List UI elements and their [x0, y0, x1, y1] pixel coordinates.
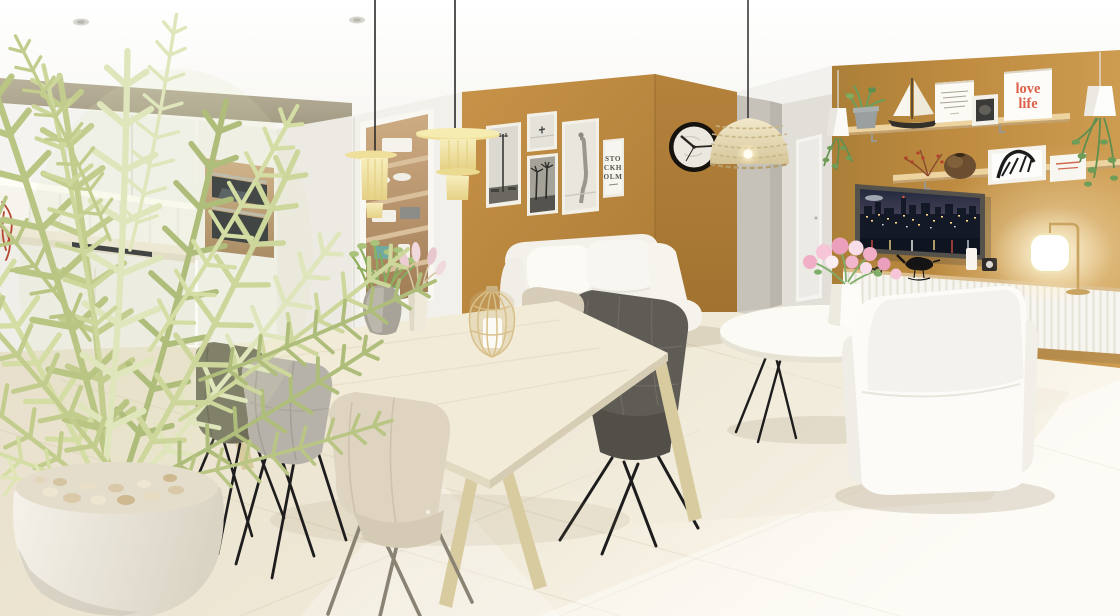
love-life-line2: life	[1018, 96, 1038, 112]
lamp-shade	[1030, 234, 1070, 272]
stockholm-line2: CKH	[604, 164, 622, 172]
zebra-print-frame	[988, 145, 1046, 185]
frame-stockholm-poster: STO CKH OLM	[603, 138, 624, 198]
hallway	[737, 66, 832, 336]
frame-beach	[527, 111, 557, 152]
quote-print	[935, 80, 974, 123]
minute-hand	[694, 146, 712, 147]
lantern-candle	[483, 318, 502, 348]
rattan-lantern	[469, 286, 514, 357]
tv-spire-light	[902, 196, 904, 198]
folded-towels-dark	[400, 207, 420, 219]
stacked-plates	[382, 138, 412, 152]
bowl	[393, 173, 411, 181]
love-life-poster: love life	[1004, 68, 1052, 121]
light-bulb	[743, 149, 752, 158]
scene-canvas: STO CKH OLM	[0, 0, 1120, 616]
frame-figure	[562, 118, 599, 215]
interior-render: STO CKH OLM	[0, 0, 1120, 616]
candle	[966, 248, 977, 270]
stockholm-line1: STO	[605, 155, 621, 163]
frame-palms	[527, 153, 558, 216]
round-vase	[944, 153, 976, 179]
love-life-line1: love	[1016, 81, 1042, 97]
small-photo-frame	[972, 94, 998, 126]
armchair-back-cushion	[867, 290, 1024, 392]
stockholm-line3: OLM	[604, 173, 623, 181]
plant-pot	[13, 462, 224, 616]
tv-clouds	[865, 195, 883, 201]
armchair-white	[835, 286, 1055, 514]
hallway-door	[796, 134, 822, 302]
